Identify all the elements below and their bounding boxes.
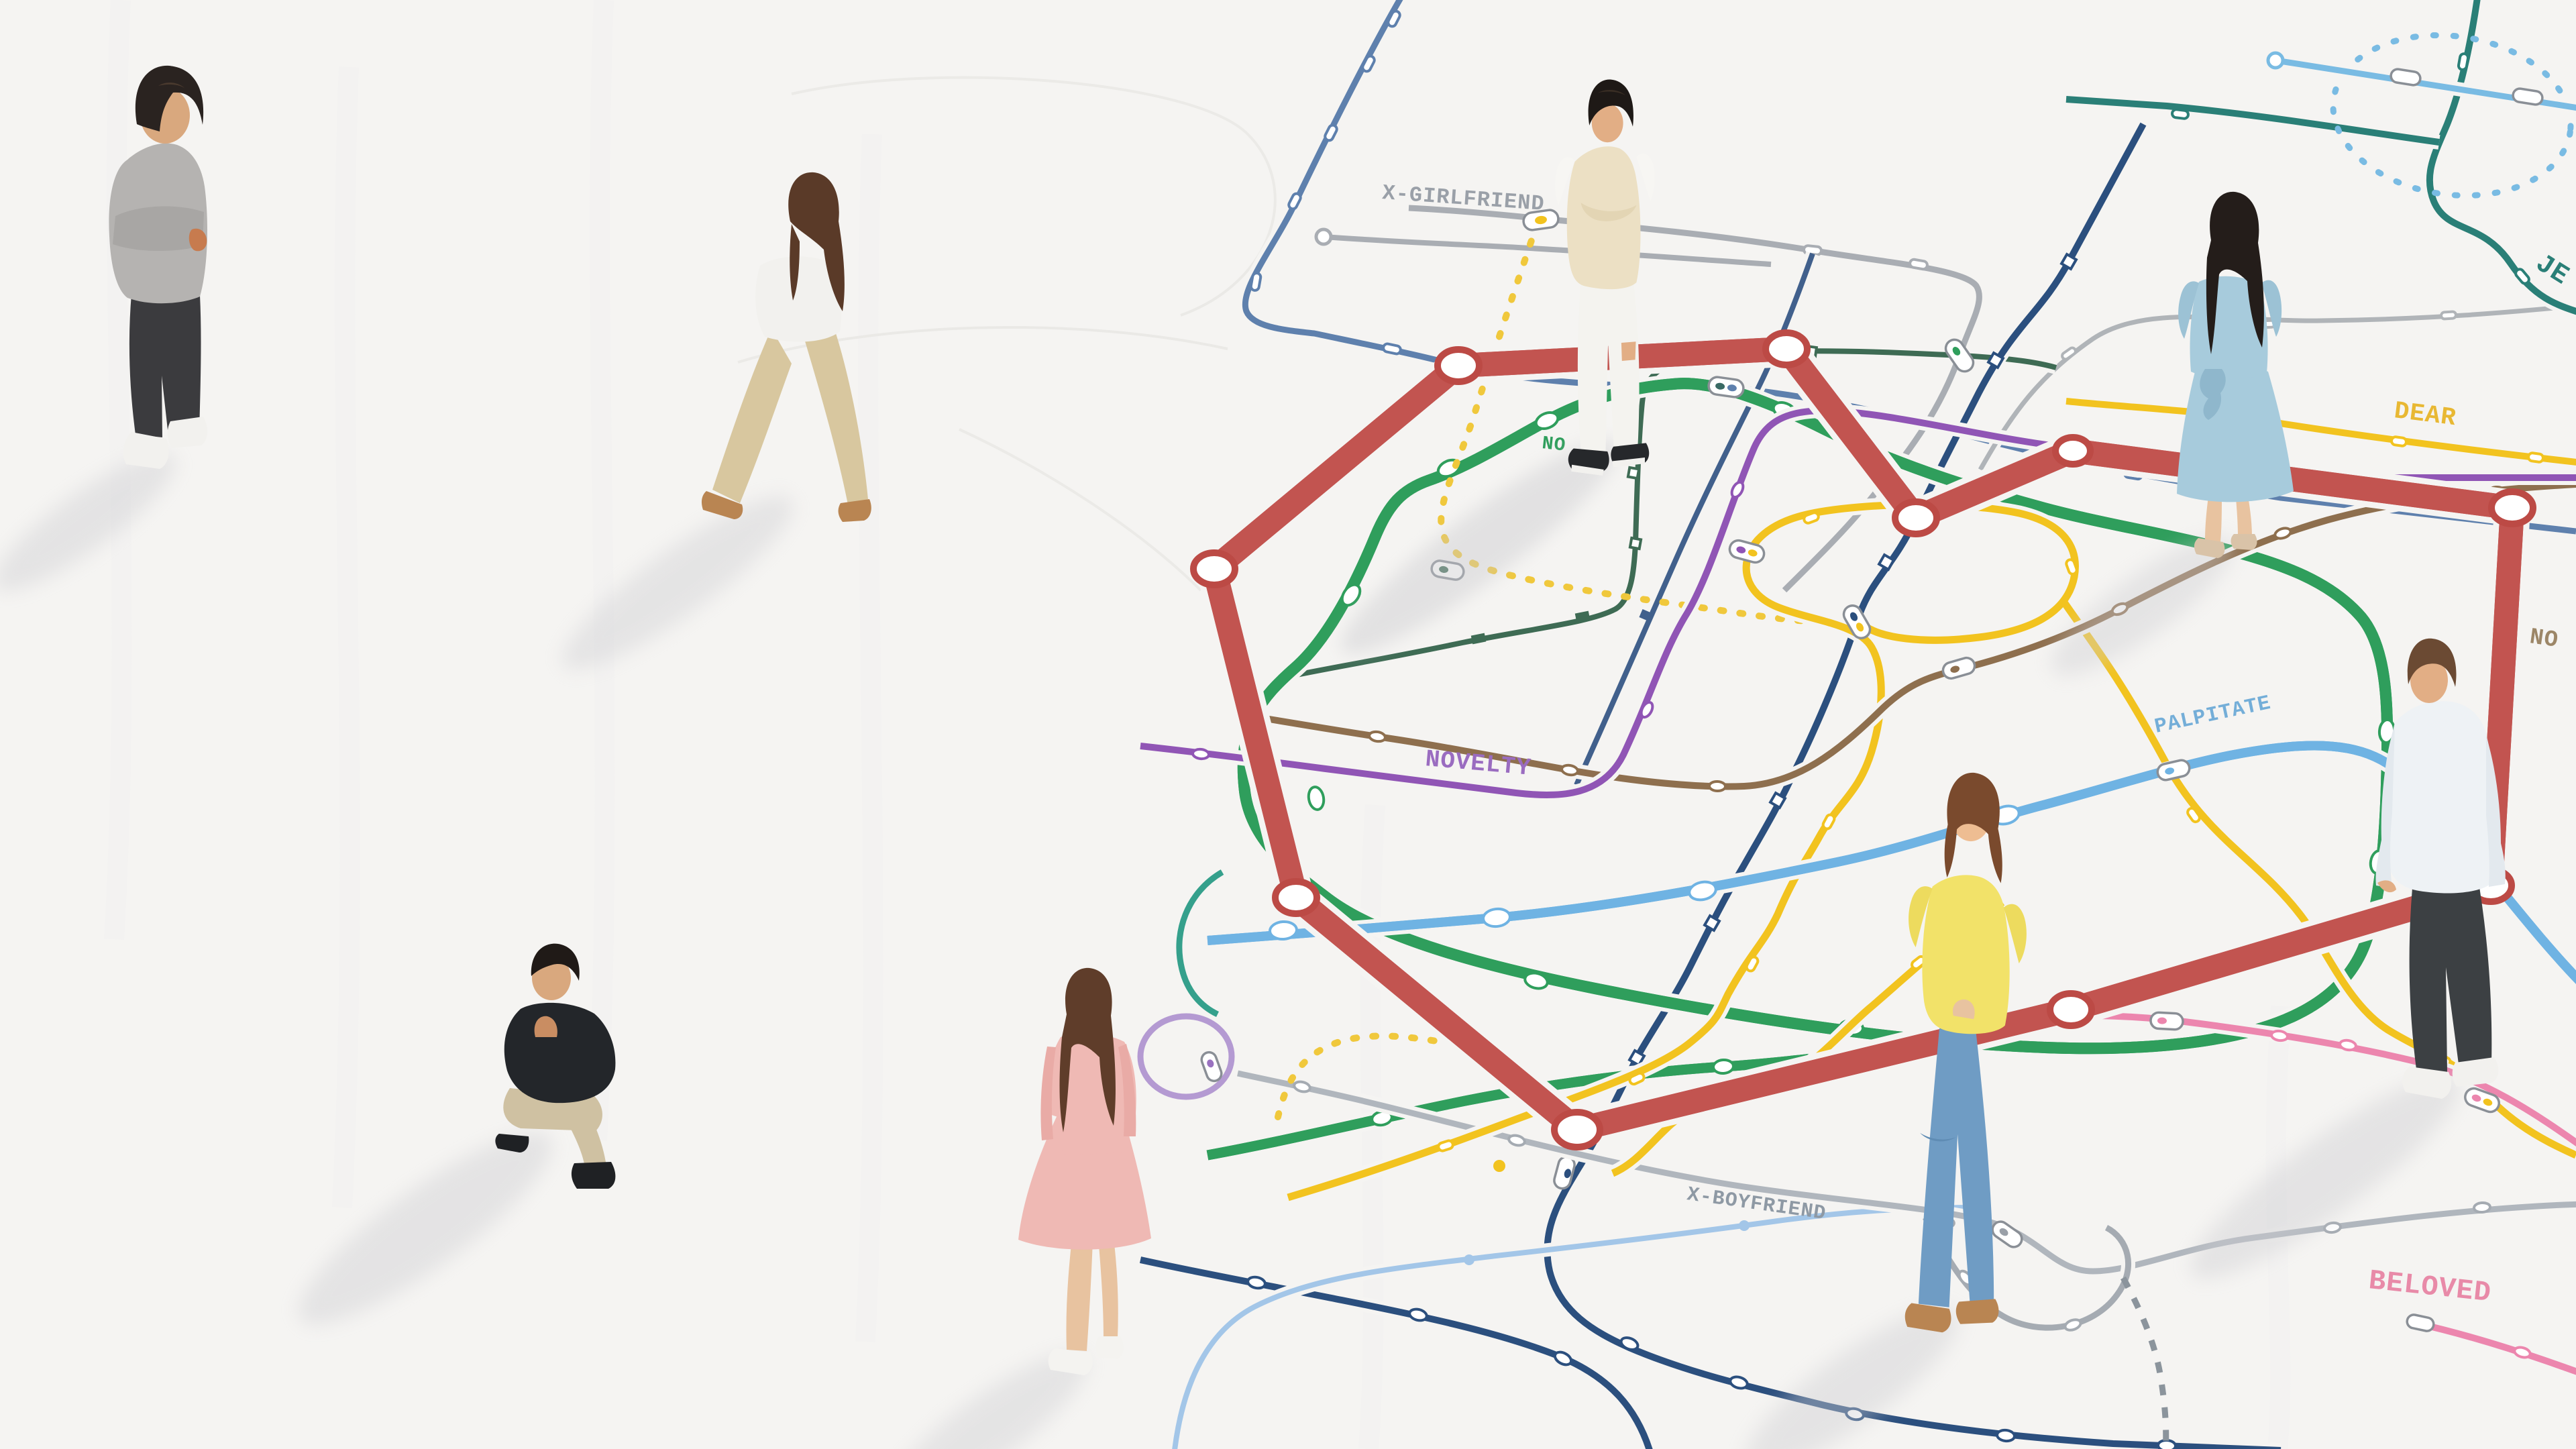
svg-text:NO: NO [2528, 625, 2560, 654]
svg-text:NO: NO [1541, 433, 1567, 457]
